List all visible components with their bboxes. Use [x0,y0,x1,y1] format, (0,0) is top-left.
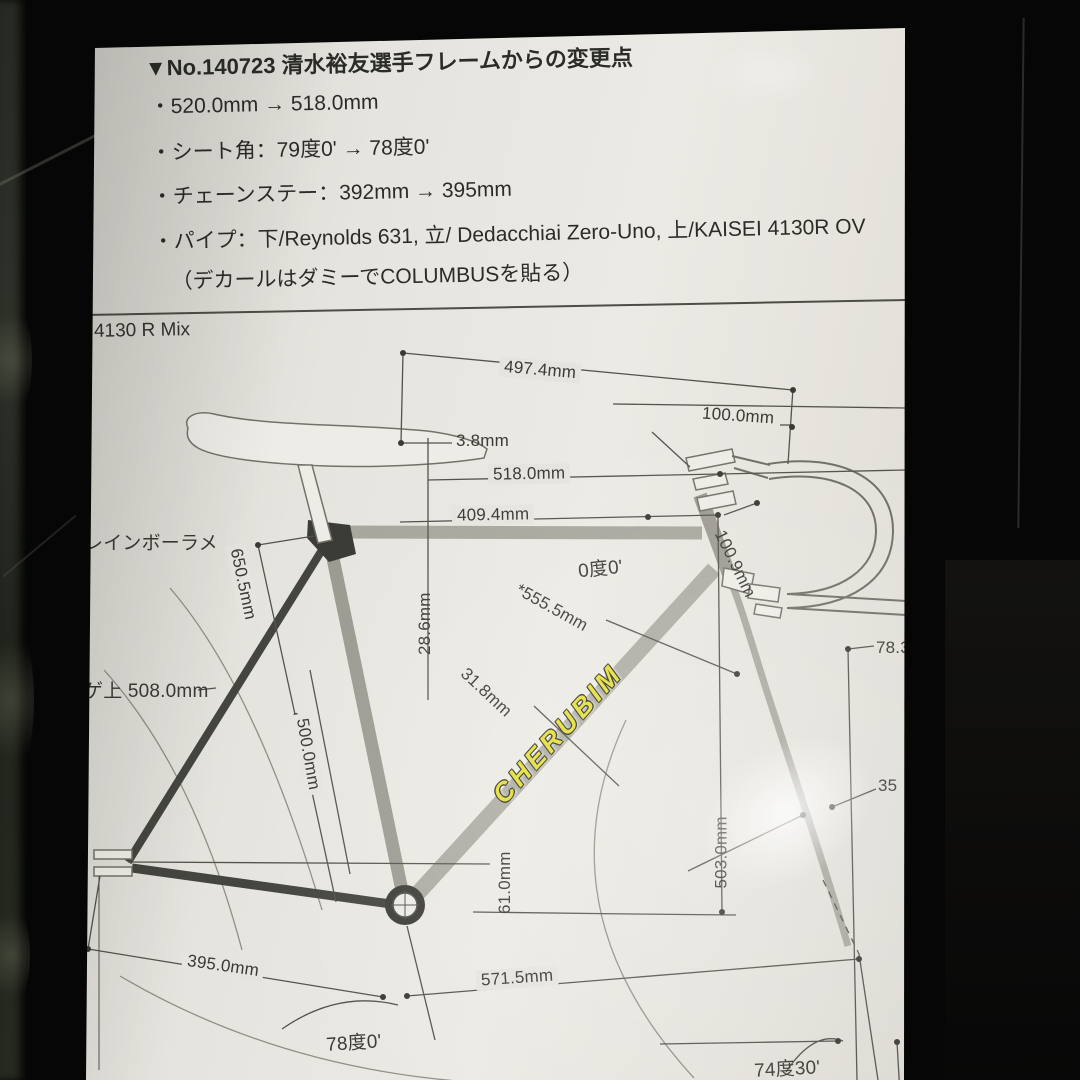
dim-top-tube-angle: 0度0' [577,552,624,584]
stem-cap [686,449,735,471]
standover-label: ゲ上 508.0mm [84,676,208,703]
dim-top-tube: 518.0mm [488,463,571,484]
dim-trail: 78.3 [876,638,910,658]
photo-of-screen: ▼No.140723 清水裕友選手フレームからの変更点 ・520.0mm → 5… [0,0,1080,1080]
top-tube [344,532,702,533]
dim-seat-angle: 78度0' [325,1026,382,1057]
tablet-screen: ▼No.140723 清水裕友選手フレームからの変更点 ・520.0mm → 5… [86,28,908,1080]
change-notes: ▼No.140723 清水裕友選手フレームからの変更点 ・520.0mm → 5… [86,11,886,28]
dim-fork-rake: 35 [878,776,897,796]
dim-saddle-setback: 3.8mm [456,431,509,451]
component-outlines [94,413,782,876]
chain-stay [132,868,398,905]
reflection-glow [945,560,1080,1080]
dim-bb-drop: 61.0mm [495,852,515,914]
saddle [187,413,487,467]
table-edge-texture [0,0,26,1080]
reflection-line [1017,18,1024,528]
seat-tube [330,544,405,905]
dim-head-angle: 74度30' [753,1052,820,1080]
headset-spacer [693,473,728,490]
rear-dropout-lower [94,867,132,876]
brake-lever-body [754,604,782,618]
series-label: 4130 R Mix [94,319,190,343]
paint-label: レインボーラメ [84,528,218,555]
dim-reach: 409.4mm [452,504,535,525]
dim-front-height: 503.0mm [712,814,732,889]
seatpost [298,465,332,543]
fork-blade [730,579,848,946]
dim-seatpost-dia: 28.6mm [415,593,435,655]
separator-line [86,300,906,315]
rear-dropout-upper [94,850,132,859]
